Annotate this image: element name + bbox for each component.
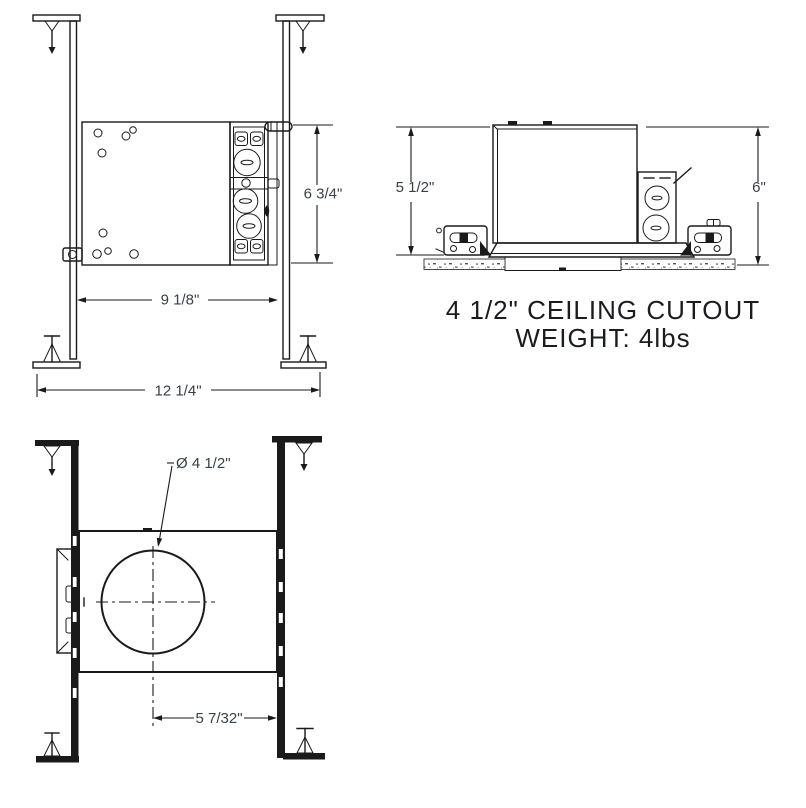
- dim-side-housing-height-label: 5 1/2": [396, 179, 435, 196]
- ceiling-right: [621, 259, 735, 270]
- clamp-bolt: [265, 122, 292, 131]
- front-hanger-bar-left: [33, 15, 82, 368]
- dim-front-height: 6 3/4": [291, 125, 342, 263]
- dim-front-width: 9 1/8": [77, 292, 278, 309]
- side-view: 5 1/2" 6" 4 1/2" CEILING CUTOUT WEIGHT: …: [396, 121, 769, 353]
- dim-side-overall-height: 6": [646, 127, 769, 265]
- dim-front-overall-width-label: 12 1/4": [154, 383, 201, 400]
- caption: 4 1/2" CEILING CUTOUT WEIGHT: 4lbs: [446, 295, 760, 353]
- dim-side-housing-height: 5 1/2": [396, 127, 490, 255]
- dim-cutout-diameter-label: Ø 4 1/2": [176, 455, 231, 472]
- bracket-left: [436, 226, 492, 256]
- bracket-right: [680, 220, 731, 256]
- dim-cutout-diameter: Ø 4 1/2": [157, 455, 231, 547]
- bottom-view: Ø 4 1/2" 5 7/32": [35, 436, 325, 763]
- ceiling-left: [424, 259, 505, 270]
- technical-drawing: 6 3/4" 9 1/8" 12 1/4": [0, 0, 806, 808]
- bottom-hanger-bar-right: [272, 436, 325, 760]
- dim-side-overall-height-label: 6": [752, 179, 766, 196]
- dim-center-to-edge: 5 7/32": [153, 710, 277, 727]
- caption-line1: 4 1/2" CEILING CUTOUT: [446, 295, 760, 325]
- dim-front-width-label: 9 1/8": [161, 292, 200, 309]
- drawing-page: 6 3/4" 9 1/8" 12 1/4": [0, 0, 806, 808]
- ceiling-section: [424, 259, 735, 270]
- dim-center-to-edge-label: 5 7/32": [195, 710, 242, 727]
- dim-front-height-label: 6 3/4": [304, 186, 343, 203]
- dim-front-overall-width: 12 1/4": [37, 372, 320, 400]
- caption-line2: WEIGHT: 4lbs: [515, 323, 690, 353]
- junction-box-side: [638, 168, 691, 243]
- front-view: 6 3/4" 9 1/8" 12 1/4": [33, 15, 342, 400]
- bottom-plate: [79, 528, 277, 727]
- mounting-plate: [82, 122, 230, 265]
- housing-body: [493, 121, 637, 243]
